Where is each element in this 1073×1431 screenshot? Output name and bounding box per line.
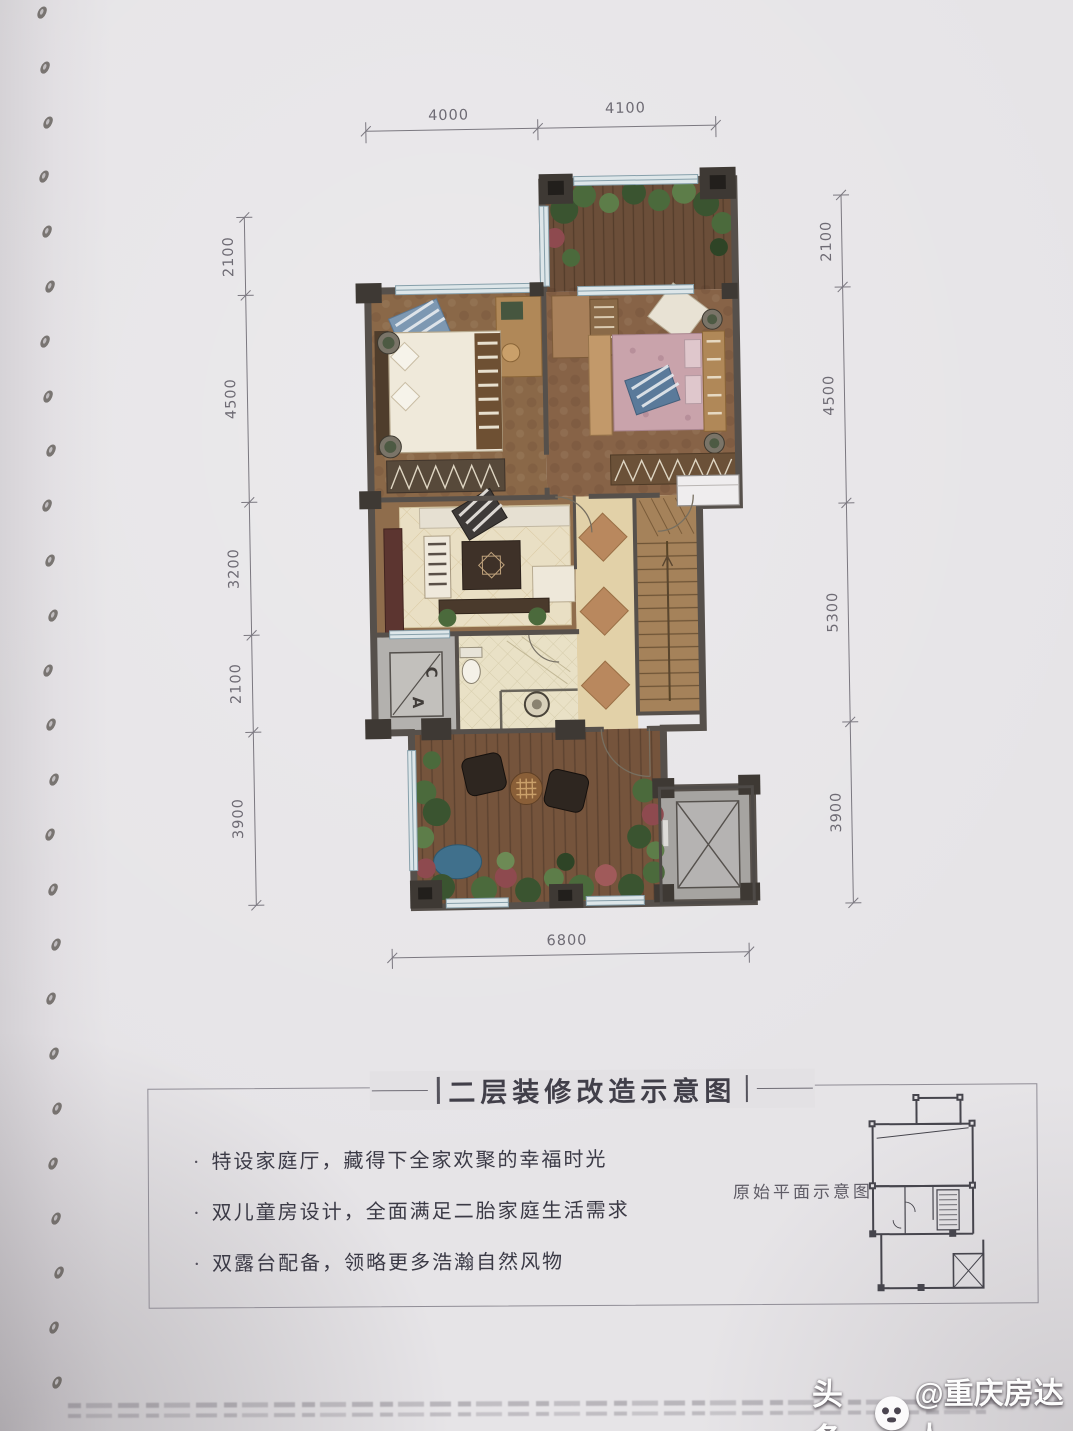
dim-left-4: 2100 — [228, 663, 245, 704]
toilet — [462, 659, 480, 683]
bullet-text: 双露台配备，领略更多浩瀚自然风物 — [212, 1251, 564, 1275]
bullet-item: ·特设家庭厅，藏得下全家欢聚的幸福时光 — [193, 1143, 630, 1175]
watermark: 头条 @重庆房达人 — [812, 1367, 1073, 1431]
dim-top-1: 4000 — [428, 107, 469, 124]
pond — [433, 844, 482, 879]
bullet-item: ·双儿童房设计，全面满足二胎家庭生活需求 — [193, 1194, 630, 1226]
ac-letter-a: A — [409, 696, 427, 708]
tall-cabinet — [384, 529, 404, 633]
title-rule-left — [372, 1090, 428, 1092]
page-title: 二层装修改造示意图 — [448, 1069, 736, 1110]
tv-rug — [462, 541, 521, 590]
feature-bullets: ·特设家庭厅，藏得下全家欢聚的幸福时光 ·双儿童房设计，全面满足二胎家庭生活需求… — [193, 1143, 631, 1299]
dim-left-3: 3200 — [226, 548, 243, 589]
bay-window — [677, 475, 740, 506]
terrace-chair — [543, 768, 591, 814]
bench — [588, 335, 612, 435]
ac-letter-c: C — [422, 667, 440, 678]
bullet-item: ·双露台配备，领略更多浩瀚自然风物 — [193, 1245, 630, 1277]
dim-right-4: 3900 — [828, 792, 845, 833]
title-rule-right — [757, 1087, 813, 1089]
dim-bottom-1: 6800 — [546, 933, 587, 950]
desk — [552, 295, 591, 358]
pillow — [685, 375, 701, 403]
title-bar-right — [745, 1075, 748, 1102]
watermark-handle: @重庆房达人 — [914, 1368, 1073, 1431]
elevator-door — [663, 820, 668, 846]
dim-left-1: 2100 — [221, 236, 238, 277]
corridor-tiles — [579, 513, 630, 710]
dim-top-2: 4100 — [605, 100, 646, 117]
dim-left-5: 3900 — [230, 798, 247, 839]
terrace-chair — [460, 751, 508, 797]
chaise — [532, 566, 575, 603]
toutiao-face-icon — [874, 1396, 908, 1430]
section-title: 二层装修改造示意图 — [370, 1069, 815, 1111]
bullet-text: 双儿童房设计，全面满足二胎家庭生活需求 — [212, 1200, 630, 1225]
headboard-shelf — [702, 331, 726, 431]
watermark-prefix: 头条 — [812, 1369, 869, 1431]
brochure-photo: C A — [0, 0, 1073, 1431]
dim-left-2: 4500 — [223, 378, 240, 419]
dim-right-2: 4500 — [821, 375, 838, 416]
info-box: 二层装修改造示意图 ·特设家庭厅，藏得下全家欢聚的幸福时光 ·双儿童房设计，全面… — [147, 1083, 1038, 1308]
dim-right-1: 2100 — [818, 221, 835, 262]
toilet-tank — [460, 647, 482, 657]
family-hall-furniture — [383, 486, 575, 633]
mini-plan-label: 原始平面示意图 — [733, 1177, 873, 1203]
mini-plan-drawing — [860, 1089, 1013, 1302]
title-bar-left — [437, 1077, 440, 1104]
pillow — [685, 339, 701, 367]
bullet-text: 特设家庭厅，藏得下全家欢聚的幸福时光 — [211, 1149, 607, 1173]
ac-closet: C A — [390, 652, 443, 717]
dim-right-3: 5300 — [825, 592, 842, 633]
